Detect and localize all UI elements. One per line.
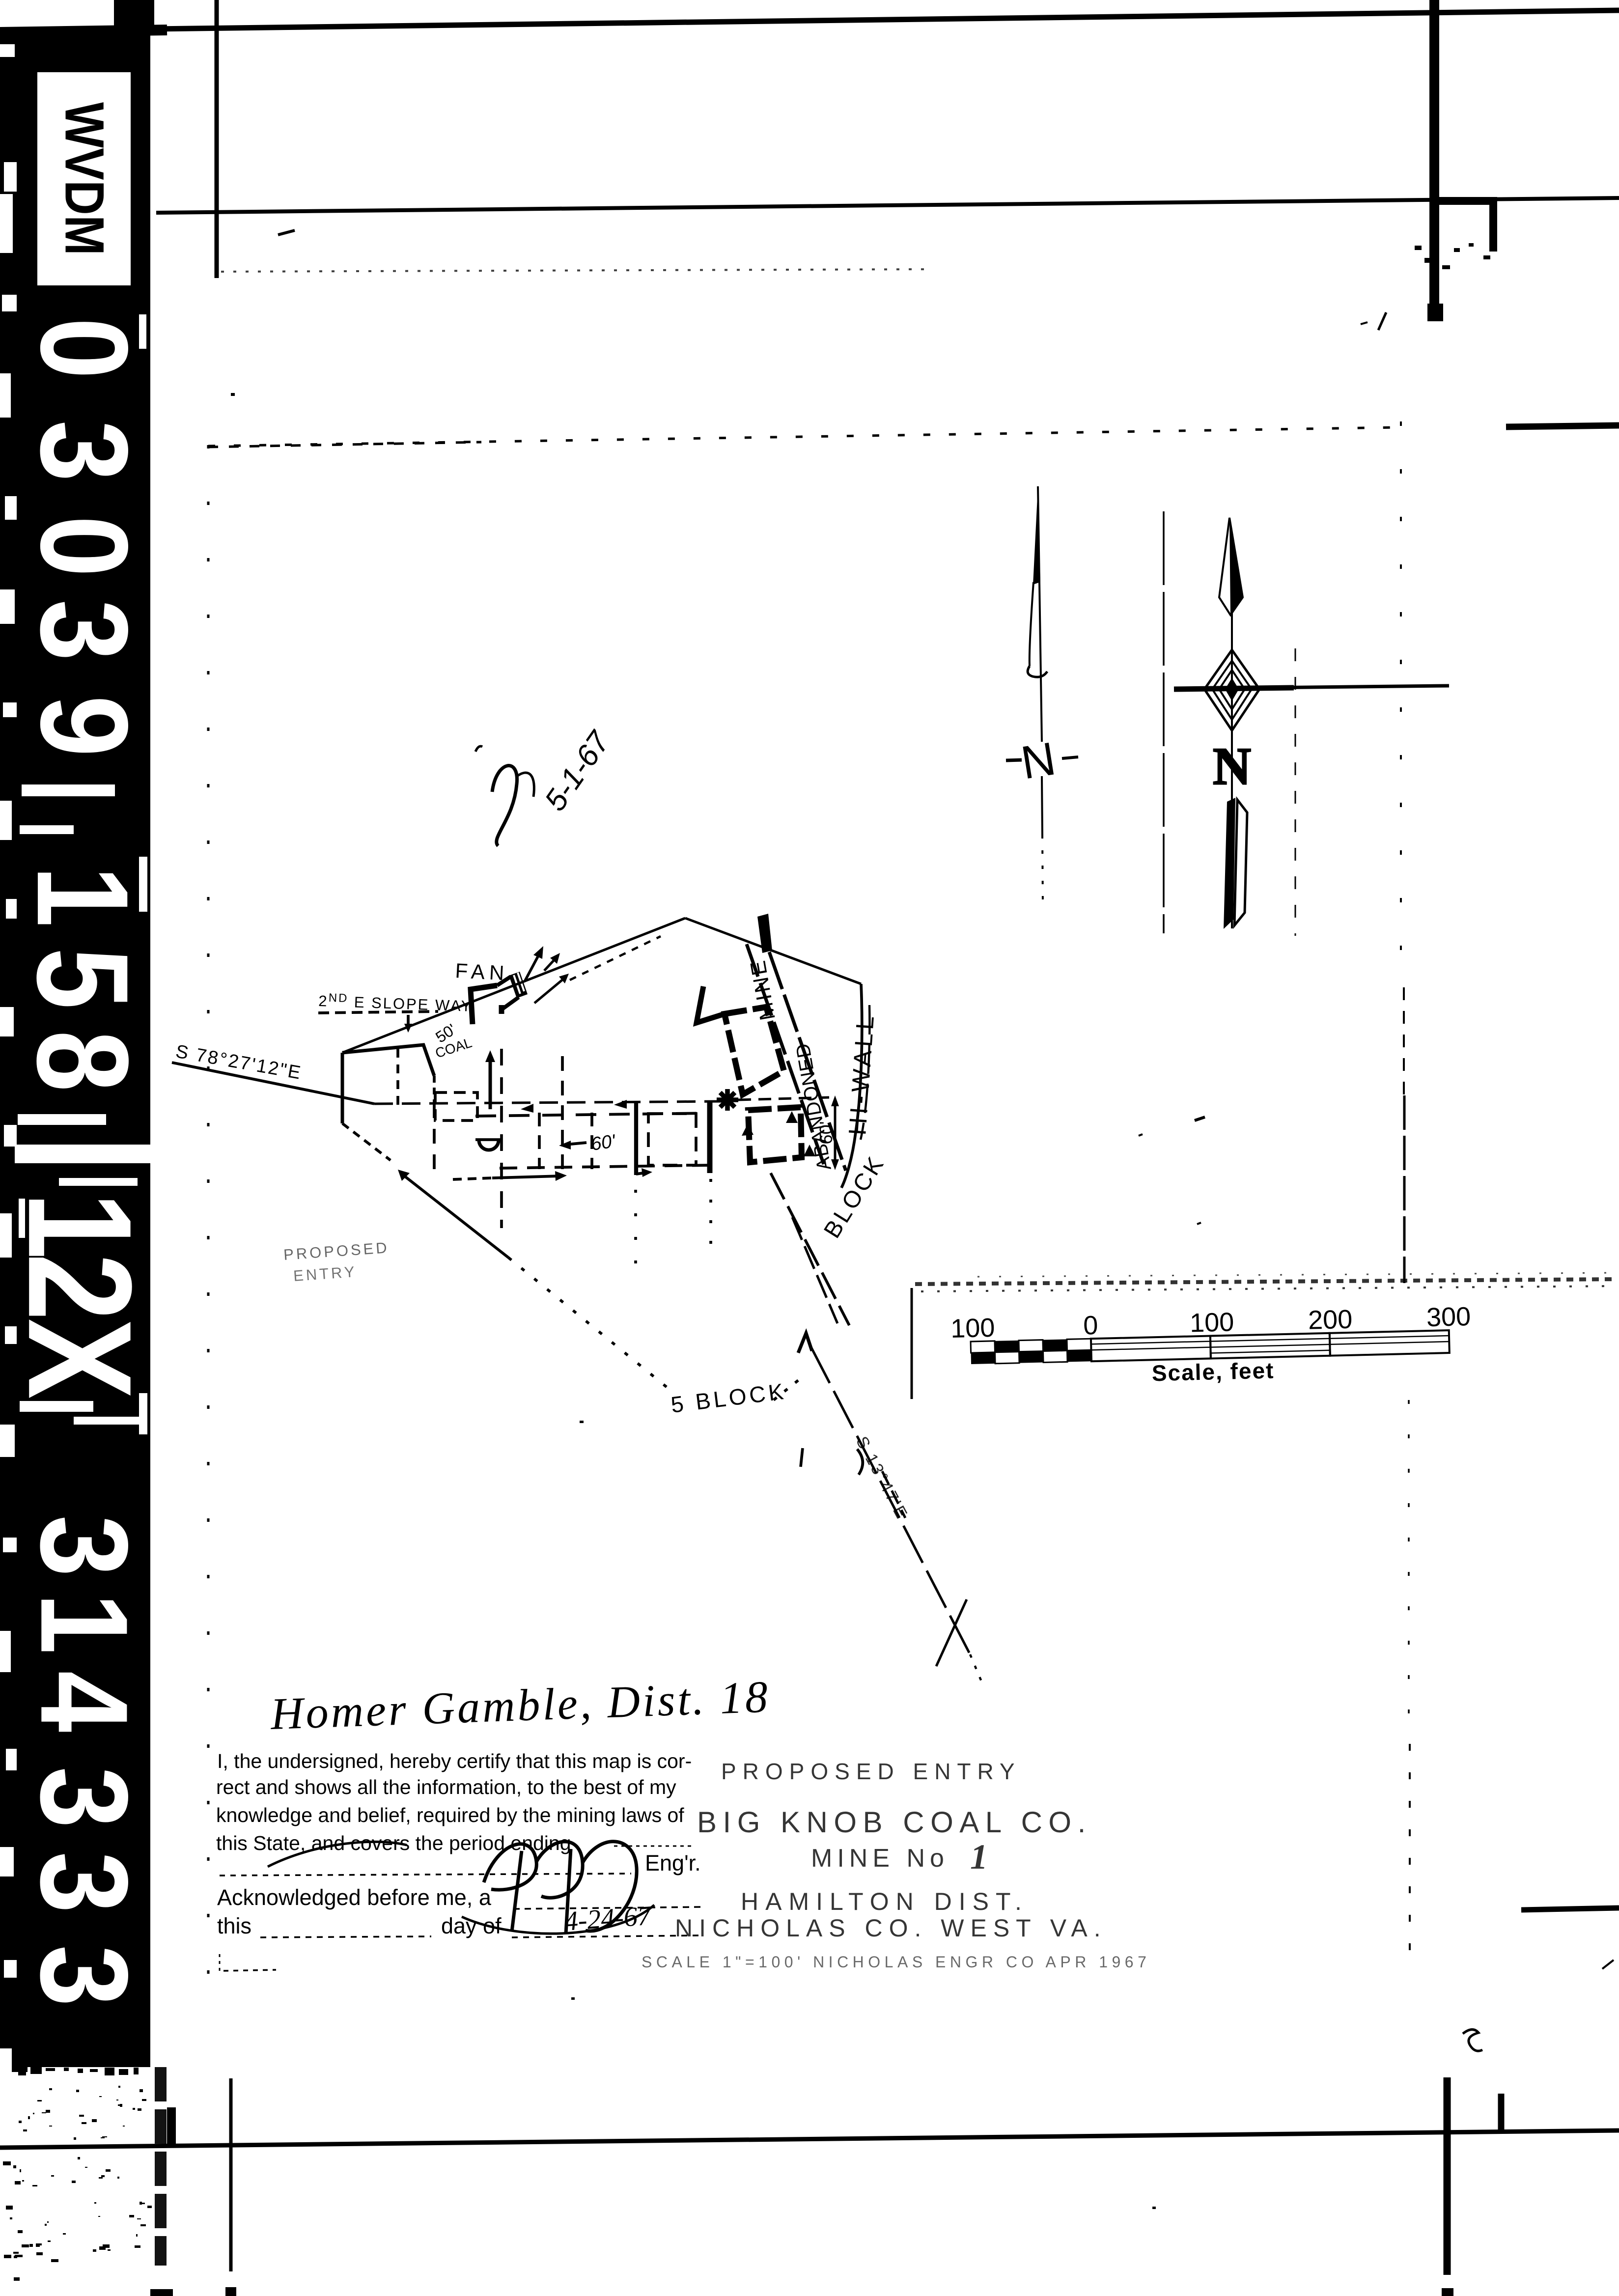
svg-text:3: 3	[15, 599, 154, 661]
svg-text:60': 60'	[589, 1131, 617, 1155]
svg-text:1: 1	[0, 1192, 162, 1260]
svg-text:1: 1	[10, 866, 155, 927]
svg-text:Homer Gamble, Dist. 18: Homer Gamble, Dist. 18	[269, 1672, 771, 1739]
svg-text:3: 3	[15, 420, 154, 481]
svg-text:N: N	[1213, 737, 1251, 796]
svg-text:300: 300	[1426, 1302, 1471, 1332]
svg-text:100: 100	[950, 1313, 995, 1344]
svg-text:1: 1	[970, 1837, 988, 1876]
svg-text:200: 200	[1308, 1305, 1352, 1335]
svg-text:2: 2	[0, 1254, 162, 1321]
svg-text:this: this	[217, 1913, 251, 1938]
svg-text:Scale, feet: Scale, feet	[1151, 1357, 1275, 1386]
svg-text:PROPOSED: PROPOSED	[283, 1239, 390, 1263]
svg-text:0: 0	[15, 317, 154, 379]
svg-text:5-1-67: 5-1-67	[538, 725, 617, 817]
svg-text:SCALE 1"=100' NICHOLAS: SCALE 1"=100' NICHOLAS ENGR CO APR 1967	[642, 1953, 1150, 1971]
svg-text:NICHOLAS CO. WEST VA.: NICHOLAS CO. WEST VA.	[675, 1914, 1107, 1942]
svg-text:BIG KNOB COAL CO.: BIG KNOB COAL CO.	[697, 1806, 1092, 1839]
svg-text:100: 100	[1189, 1307, 1234, 1338]
svg-text:rect and shows all the informa: rect and shows all the information, to t…	[216, 1776, 676, 1798]
svg-text:HI-WALL: HI-WALL	[843, 1012, 879, 1136]
svg-text:5 BLOCK: 5 BLOCK	[670, 1378, 788, 1418]
svg-text:3: 3	[15, 1945, 154, 2006]
svg-text:0: 0	[15, 515, 154, 577]
svg-text:1: 1	[15, 1593, 154, 1654]
svg-text:9: 9	[15, 695, 154, 756]
svg-text:WVDM: WVDM	[54, 102, 114, 255]
svg-text:ENTRY: ENTRY	[293, 1263, 358, 1285]
svg-text:PROPOSED ENTRY: PROPOSED ENTRY	[721, 1759, 1021, 1784]
svg-text:HAMILTON DIST.: HAMILTON DIST.	[741, 1888, 1029, 1915]
svg-text:4: 4	[15, 1671, 154, 1732]
svg-text:8: 8	[10, 1030, 155, 1092]
svg-text:0: 0	[1083, 1311, 1098, 1341]
svg-text:MINE No: MINE No	[811, 1844, 949, 1873]
svg-text:Eng'r.: Eng'r.	[645, 1850, 701, 1876]
svg-text:N: N	[1018, 732, 1059, 789]
svg-text:3: 3	[15, 1766, 154, 1828]
svg-text:5: 5	[10, 948, 155, 1009]
svg-text:Acknowledged before me, a: Acknowledged before me, a	[217, 1885, 492, 1910]
svg-text:S 13°47'E: S 13°47'E	[852, 1433, 912, 1523]
svg-text:3: 3	[15, 1515, 154, 1576]
svg-text:I, the undersigned, hereby cer: I, the undersigned, hereby certify that …	[217, 1750, 692, 1772]
svg-text:knowledge and belief, required: knowledge and belief, required by the mi…	[216, 1804, 684, 1826]
svg-text:3: 3	[15, 1851, 154, 1913]
svg-text:X: X	[0, 1318, 162, 1400]
